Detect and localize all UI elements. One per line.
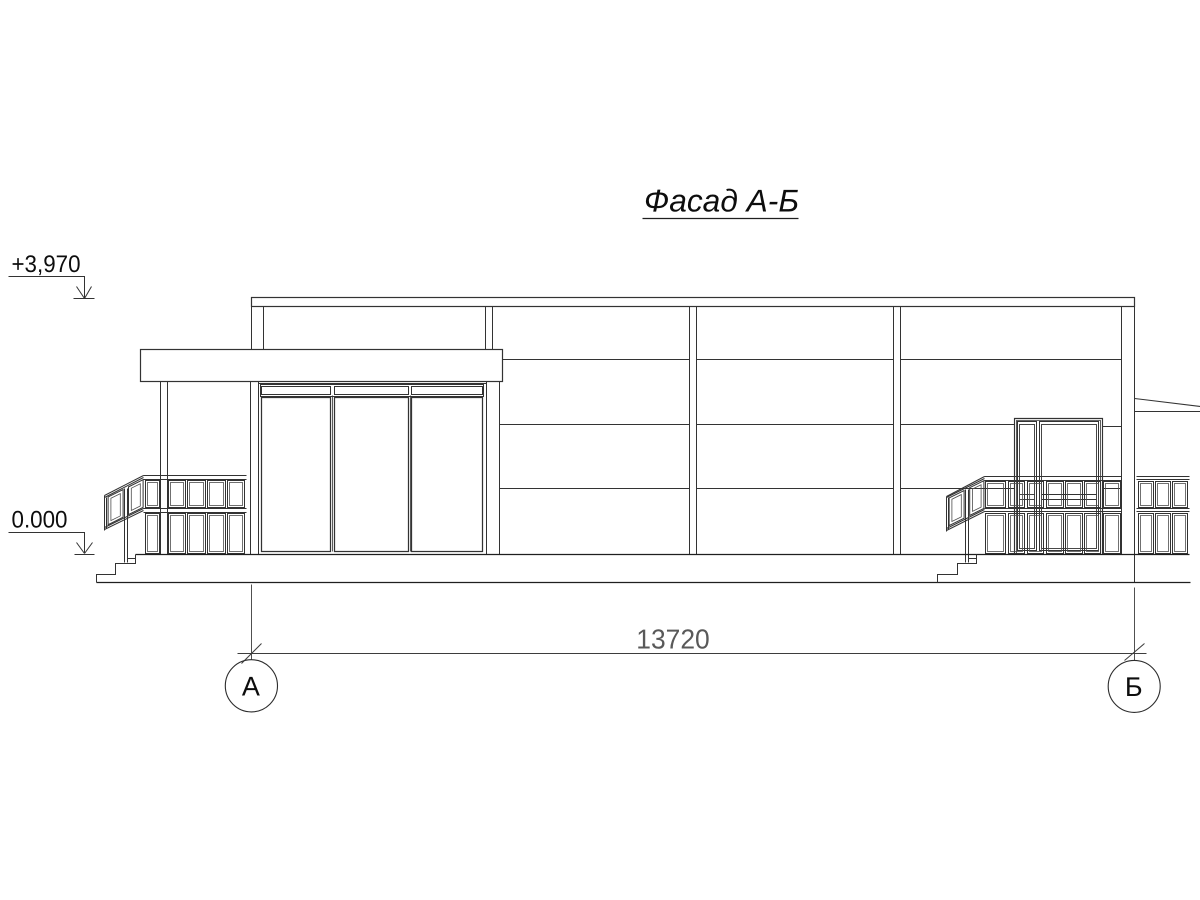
svg-text:+3,970: +3,970 xyxy=(12,251,81,278)
svg-text:0.000: 0.000 xyxy=(12,507,68,534)
svg-text:А: А xyxy=(242,671,260,701)
svg-text:Фасад А-Б: Фасад А-Б xyxy=(644,183,799,219)
svg-text:Б: Б xyxy=(1125,672,1143,702)
svg-text:13720: 13720 xyxy=(636,624,710,655)
